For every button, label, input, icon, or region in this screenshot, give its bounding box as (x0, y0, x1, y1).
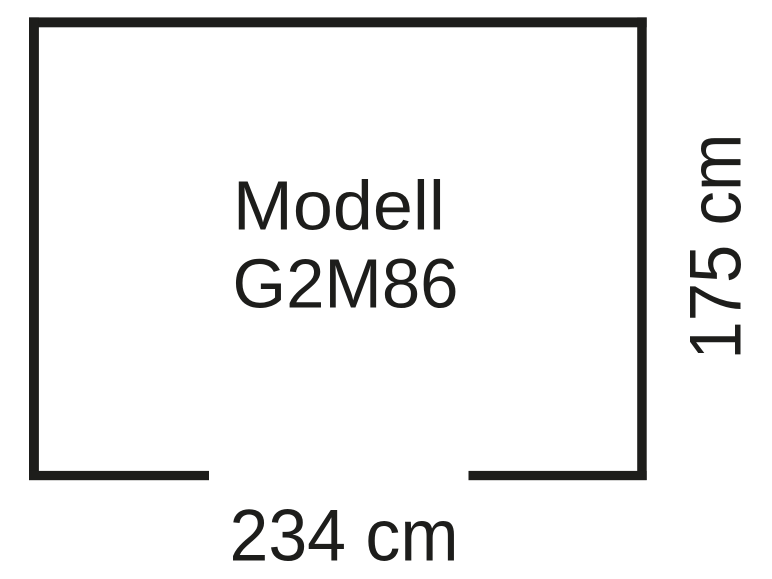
svg-text:Modell: Modell (233, 167, 445, 245)
svg-text:G2M86: G2M86 (233, 245, 459, 323)
svg-text:175 cm: 175 cm (676, 134, 757, 360)
svg-text:234 cm: 234 cm (230, 496, 459, 577)
